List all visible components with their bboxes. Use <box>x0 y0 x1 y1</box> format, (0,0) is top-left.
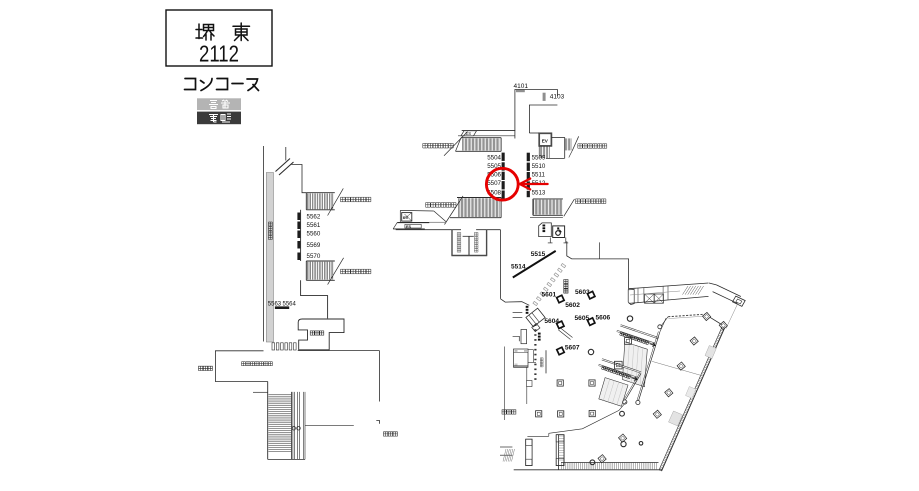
svg-text:5504: 5504 <box>487 154 501 161</box>
svg-text:5562: 5562 <box>307 214 321 221</box>
svg-text:5513: 5513 <box>532 190 546 197</box>
svg-text:5507: 5507 <box>487 180 501 187</box>
svg-text:5509: 5509 <box>532 154 546 161</box>
svg-text:5607: 5607 <box>565 344 580 351</box>
svg-text:EV: EV <box>403 215 409 220</box>
svg-text:ES: ES <box>406 225 412 229</box>
svg-text:2112: 2112 <box>199 41 239 67</box>
svg-text:5560: 5560 <box>307 231 321 238</box>
svg-text:5510: 5510 <box>532 163 546 170</box>
svg-text:5601: 5601 <box>542 291 557 298</box>
svg-text:5515: 5515 <box>531 251 546 258</box>
svg-text:4101: 4101 <box>514 83 529 90</box>
svg-text:5606: 5606 <box>596 315 611 322</box>
svg-text:5602: 5602 <box>565 302 580 309</box>
svg-text:5561: 5561 <box>307 222 321 229</box>
svg-text:5570: 5570 <box>307 253 321 260</box>
svg-text:EV: EV <box>542 139 549 144</box>
svg-text:5569: 5569 <box>307 242 321 249</box>
svg-text:5511: 5511 <box>532 172 546 179</box>
svg-text:4103: 4103 <box>550 93 565 100</box>
svg-text:5514: 5514 <box>511 263 526 270</box>
svg-text:ES: ES <box>466 131 472 136</box>
